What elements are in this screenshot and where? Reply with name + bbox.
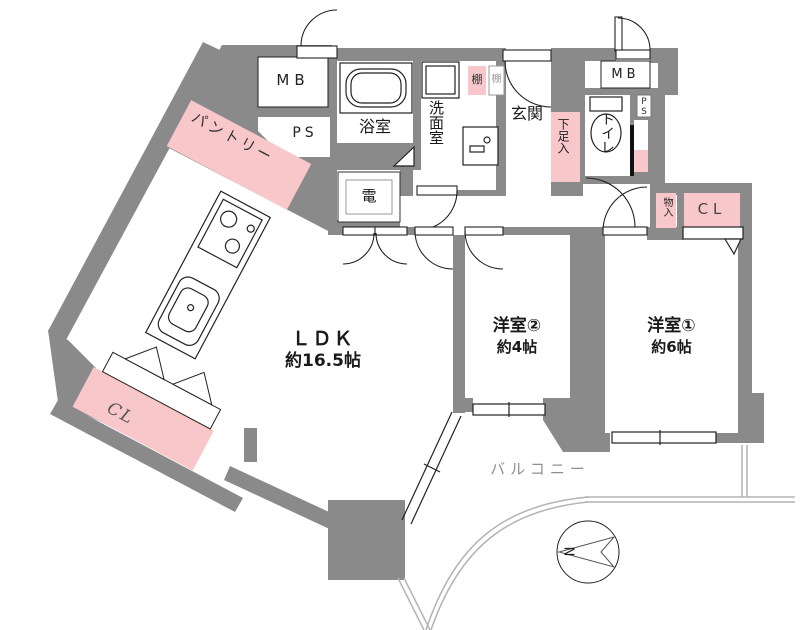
toilet-niche bbox=[634, 120, 648, 152]
bedroom1-window bbox=[612, 432, 716, 443]
bedroom1-floor bbox=[605, 240, 738, 433]
hall-corner-wall bbox=[400, 170, 413, 196]
bath-label: 浴室 bbox=[337, 119, 413, 135]
ldk-door-arc bbox=[415, 231, 453, 269]
top-wall bbox=[551, 48, 616, 61]
balcony-pillar-center bbox=[543, 390, 610, 452]
shelf-a-label: 棚 bbox=[468, 74, 486, 85]
toilet-tank-icon bbox=[590, 97, 622, 111]
bedroom2-size-label: 約4帖 bbox=[463, 340, 571, 355]
bedroom-divider-wall bbox=[570, 227, 605, 412]
meter-box-left-label: MB bbox=[258, 73, 328, 88]
closet-right-doors bbox=[683, 227, 743, 239]
top-wall bbox=[650, 48, 678, 63]
electric-door-leaf bbox=[375, 227, 407, 235]
bath-washroom-divider bbox=[413, 48, 421, 146]
floorplan-canvas: パントリー MB PS 浴室 洗面室 玄関 下足入 トイレ MB PS 物入 C… bbox=[0, 0, 800, 630]
ldk-door-leaf bbox=[415, 227, 453, 235]
floorplan-drawing bbox=[0, 0, 800, 630]
door-leaf bbox=[297, 46, 337, 58]
meter-box-right-label: MB bbox=[601, 68, 650, 81]
bedroom2-window-stub bbox=[453, 398, 473, 412]
toilet-sliding-door bbox=[630, 125, 634, 176]
small-storage-label: 物入 bbox=[661, 197, 671, 217]
door-leaf bbox=[615, 17, 622, 51]
kitchen-counter-group bbox=[146, 191, 271, 359]
hall-wall-segment bbox=[503, 227, 572, 235]
toilet-top-wall bbox=[583, 88, 665, 95]
balcony-pillar-left bbox=[328, 500, 405, 580]
right-wall-toilet-block bbox=[650, 93, 665, 185]
toilet-shelf-area bbox=[634, 150, 648, 172]
closet-right-label: CL bbox=[684, 202, 740, 217]
hall-wall-segment bbox=[407, 227, 415, 235]
vanity-faucet-icon bbox=[484, 137, 490, 143]
ldk-closet-group bbox=[73, 325, 236, 470]
door-swing-arc bbox=[301, 10, 337, 46]
bedroom1-size-label: 約6帖 bbox=[605, 340, 738, 355]
pipe-space-left-label: PS bbox=[282, 126, 328, 140]
right-outer-wall bbox=[738, 183, 752, 398]
washer-space-icon bbox=[422, 62, 459, 98]
shoe-box-label: 下足入 bbox=[557, 118, 569, 154]
door-swing-arc bbox=[343, 233, 374, 264]
pipe-space-right-label: PS bbox=[639, 97, 648, 117]
door-swing-arc bbox=[376, 233, 407, 264]
entrance-floor bbox=[506, 63, 551, 196]
entrance-label: 玄関 bbox=[502, 106, 552, 122]
electric-door-leaf bbox=[343, 227, 375, 235]
hall-wall-segment bbox=[647, 227, 683, 240]
balcony-label: バルコニー bbox=[450, 462, 630, 477]
hallway-floor bbox=[583, 184, 650, 227]
vanity-handle-icon bbox=[470, 146, 484, 152]
ldk-label: ＬＤＫ bbox=[253, 330, 393, 349]
compass-north-label: N bbox=[564, 547, 577, 557]
shelf-b-label: 棚 bbox=[489, 75, 504, 85]
washroom-label: 洗面室 bbox=[428, 100, 443, 145]
washroom-door-leaf bbox=[417, 186, 457, 195]
ldk-size-label: 約16.5帖 bbox=[253, 353, 393, 370]
bathtub-icon bbox=[346, 69, 406, 107]
door-swing-arc bbox=[618, 18, 650, 50]
hall-wall-segment bbox=[337, 222, 343, 235]
toilet-label: トイレ bbox=[600, 112, 614, 154]
entrance-door-leaf bbox=[503, 50, 551, 61]
electric-closet-label: 電 bbox=[338, 189, 400, 204]
railing-line bbox=[398, 578, 424, 630]
bedroom1-door-leaf bbox=[603, 227, 647, 235]
window-stub-wall bbox=[244, 428, 257, 462]
bedroom2-label: 洋室② bbox=[463, 318, 571, 335]
railing-line bbox=[404, 578, 430, 630]
shoebox-bottom-wall bbox=[548, 182, 585, 196]
door-threshold bbox=[616, 50, 650, 59]
bedroom1-label: 洋室① bbox=[605, 318, 738, 335]
bedroom2-door-leaf bbox=[465, 227, 503, 235]
